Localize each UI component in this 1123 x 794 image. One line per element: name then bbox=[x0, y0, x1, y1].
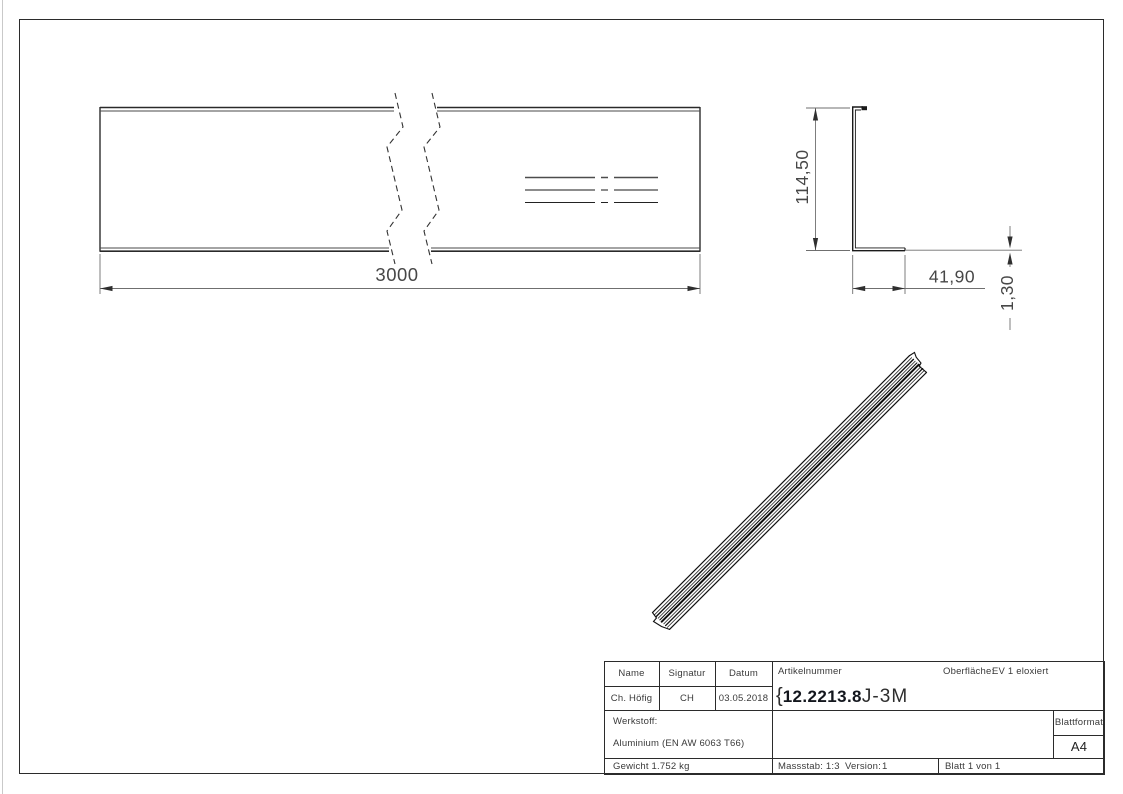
blattformat-value: A4 bbox=[1053, 735, 1105, 758]
header-name: Name bbox=[604, 661, 659, 686]
dimension-width: 41,90 bbox=[853, 255, 985, 294]
break-lines bbox=[387, 93, 440, 264]
cad-drawing-page: 3000 114,50 41,90 bbox=[0, 0, 1123, 794]
version-label: Version: bbox=[845, 758, 885, 774]
value-name: Ch. Höfig bbox=[604, 686, 659, 710]
werkstoff-label: Werkstoff: bbox=[613, 710, 772, 732]
top-lip bbox=[862, 106, 868, 110]
header-signatur: Signatur bbox=[659, 661, 715, 686]
side-view bbox=[100, 93, 700, 264]
artikelnummer-suffix: J-3M bbox=[862, 686, 908, 707]
dimension-height: 114,50 bbox=[792, 108, 850, 251]
artikelnummer-main: 12.2213.8 bbox=[783, 687, 862, 706]
centerline-marks bbox=[525, 178, 658, 203]
dim-114-text: 114,50 bbox=[792, 149, 812, 204]
header-datum: Datum bbox=[715, 661, 772, 686]
title-block: Name Signatur Datum Ch. Höfig CH 03.05.2… bbox=[604, 661, 1105, 775]
werkstoff-value: Aluminium (EN AW 6063 T66) bbox=[613, 732, 772, 754]
dim-41-text: 41,90 bbox=[929, 267, 975, 287]
value-signatur: CH bbox=[659, 686, 715, 710]
cross-section-view bbox=[853, 106, 905, 251]
blatt-text: Blatt 1 von 1 bbox=[945, 758, 1045, 774]
oberflaeche-value: EV 1 eloxiert bbox=[992, 665, 1082, 677]
gewicht-text: Gewicht 1.752 kg bbox=[613, 758, 772, 774]
version-value: 1 bbox=[882, 758, 902, 774]
value-datum: 03.05.2018 bbox=[715, 686, 772, 710]
dimension-length: 3000 bbox=[100, 254, 700, 294]
blattformat-label: Blattformat bbox=[1053, 710, 1105, 735]
artikelnummer-value: {12.2213.8J-3M bbox=[776, 685, 908, 708]
isometric-view bbox=[653, 352, 927, 629]
artikelnummer-prefix: { bbox=[776, 685, 783, 707]
artikelnummer-label: Artikelnummer bbox=[778, 665, 898, 677]
dim-130-text: 1,30 bbox=[997, 275, 1017, 311]
dim-3000-text: 3000 bbox=[375, 264, 418, 285]
